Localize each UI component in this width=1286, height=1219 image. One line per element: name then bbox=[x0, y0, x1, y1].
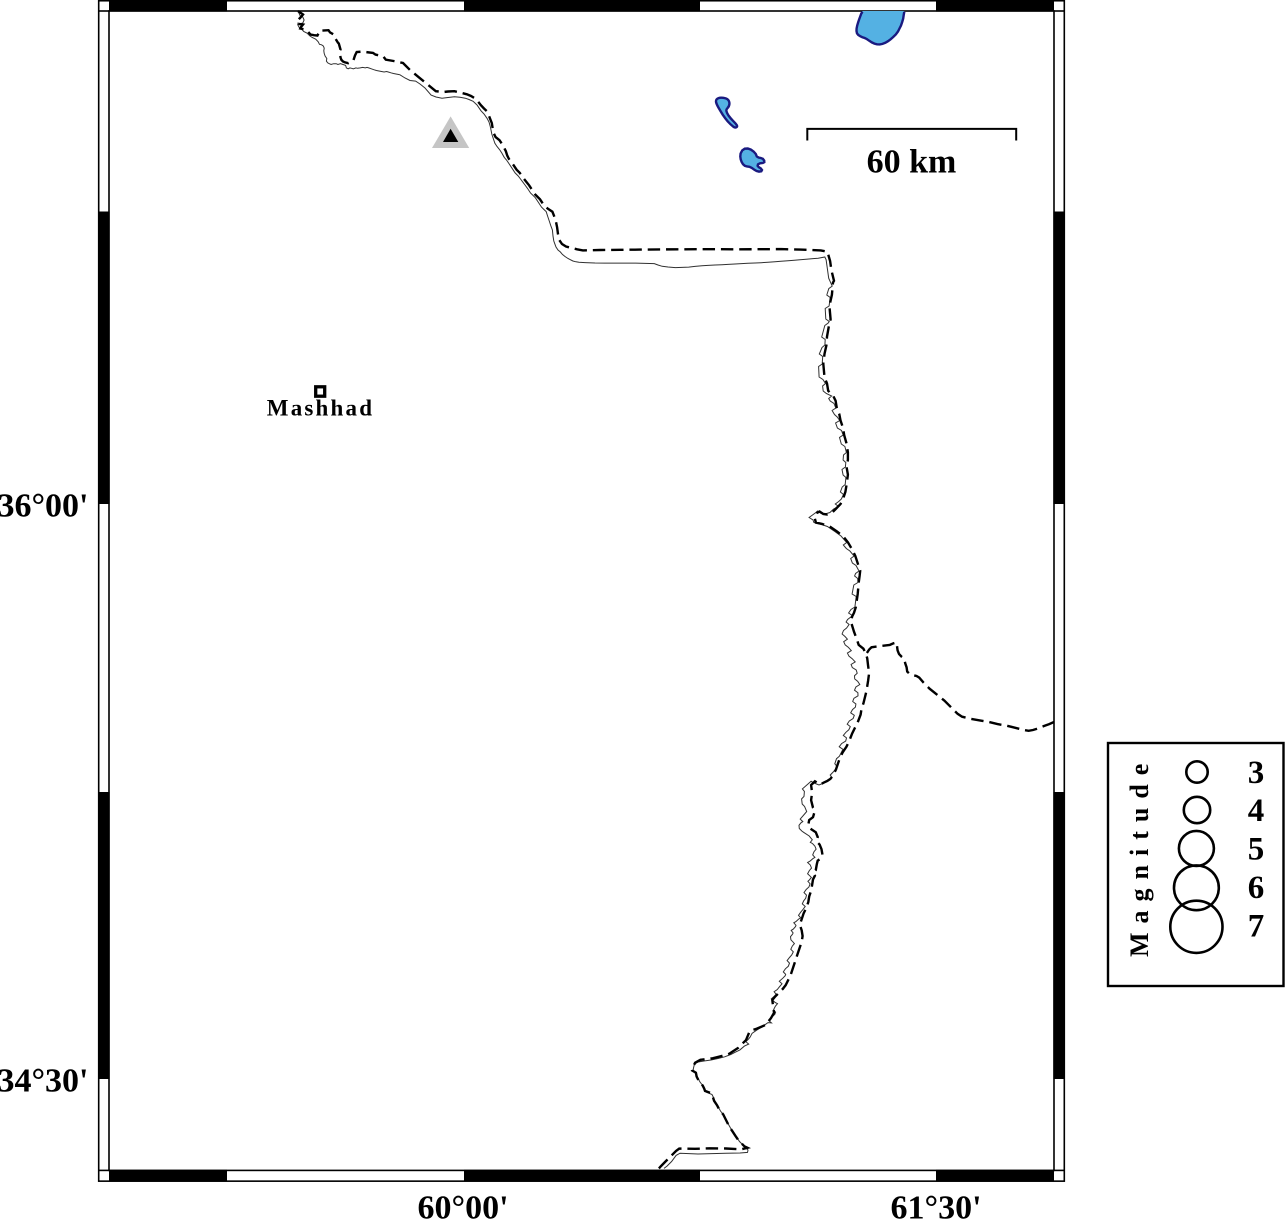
svg-text:60°00': 60°00' bbox=[417, 1190, 508, 1219]
svg-text:61°30': 61°30' bbox=[890, 1190, 981, 1219]
svg-text:7: 7 bbox=[1248, 909, 1265, 945]
svg-text:6: 6 bbox=[1248, 870, 1265, 906]
svg-text:60 km: 60 km bbox=[867, 144, 957, 181]
svg-text:Mashhad: Mashhad bbox=[267, 396, 374, 421]
svg-text:3: 3 bbox=[1248, 755, 1265, 791]
svg-text:Magnitude: Magnitude bbox=[1125, 755, 1154, 957]
svg-text:5: 5 bbox=[1248, 832, 1265, 868]
svg-text:4: 4 bbox=[1248, 793, 1265, 829]
svg-text:36°00': 36°00' bbox=[0, 487, 89, 524]
svg-text:34°30': 34°30' bbox=[0, 1062, 89, 1099]
